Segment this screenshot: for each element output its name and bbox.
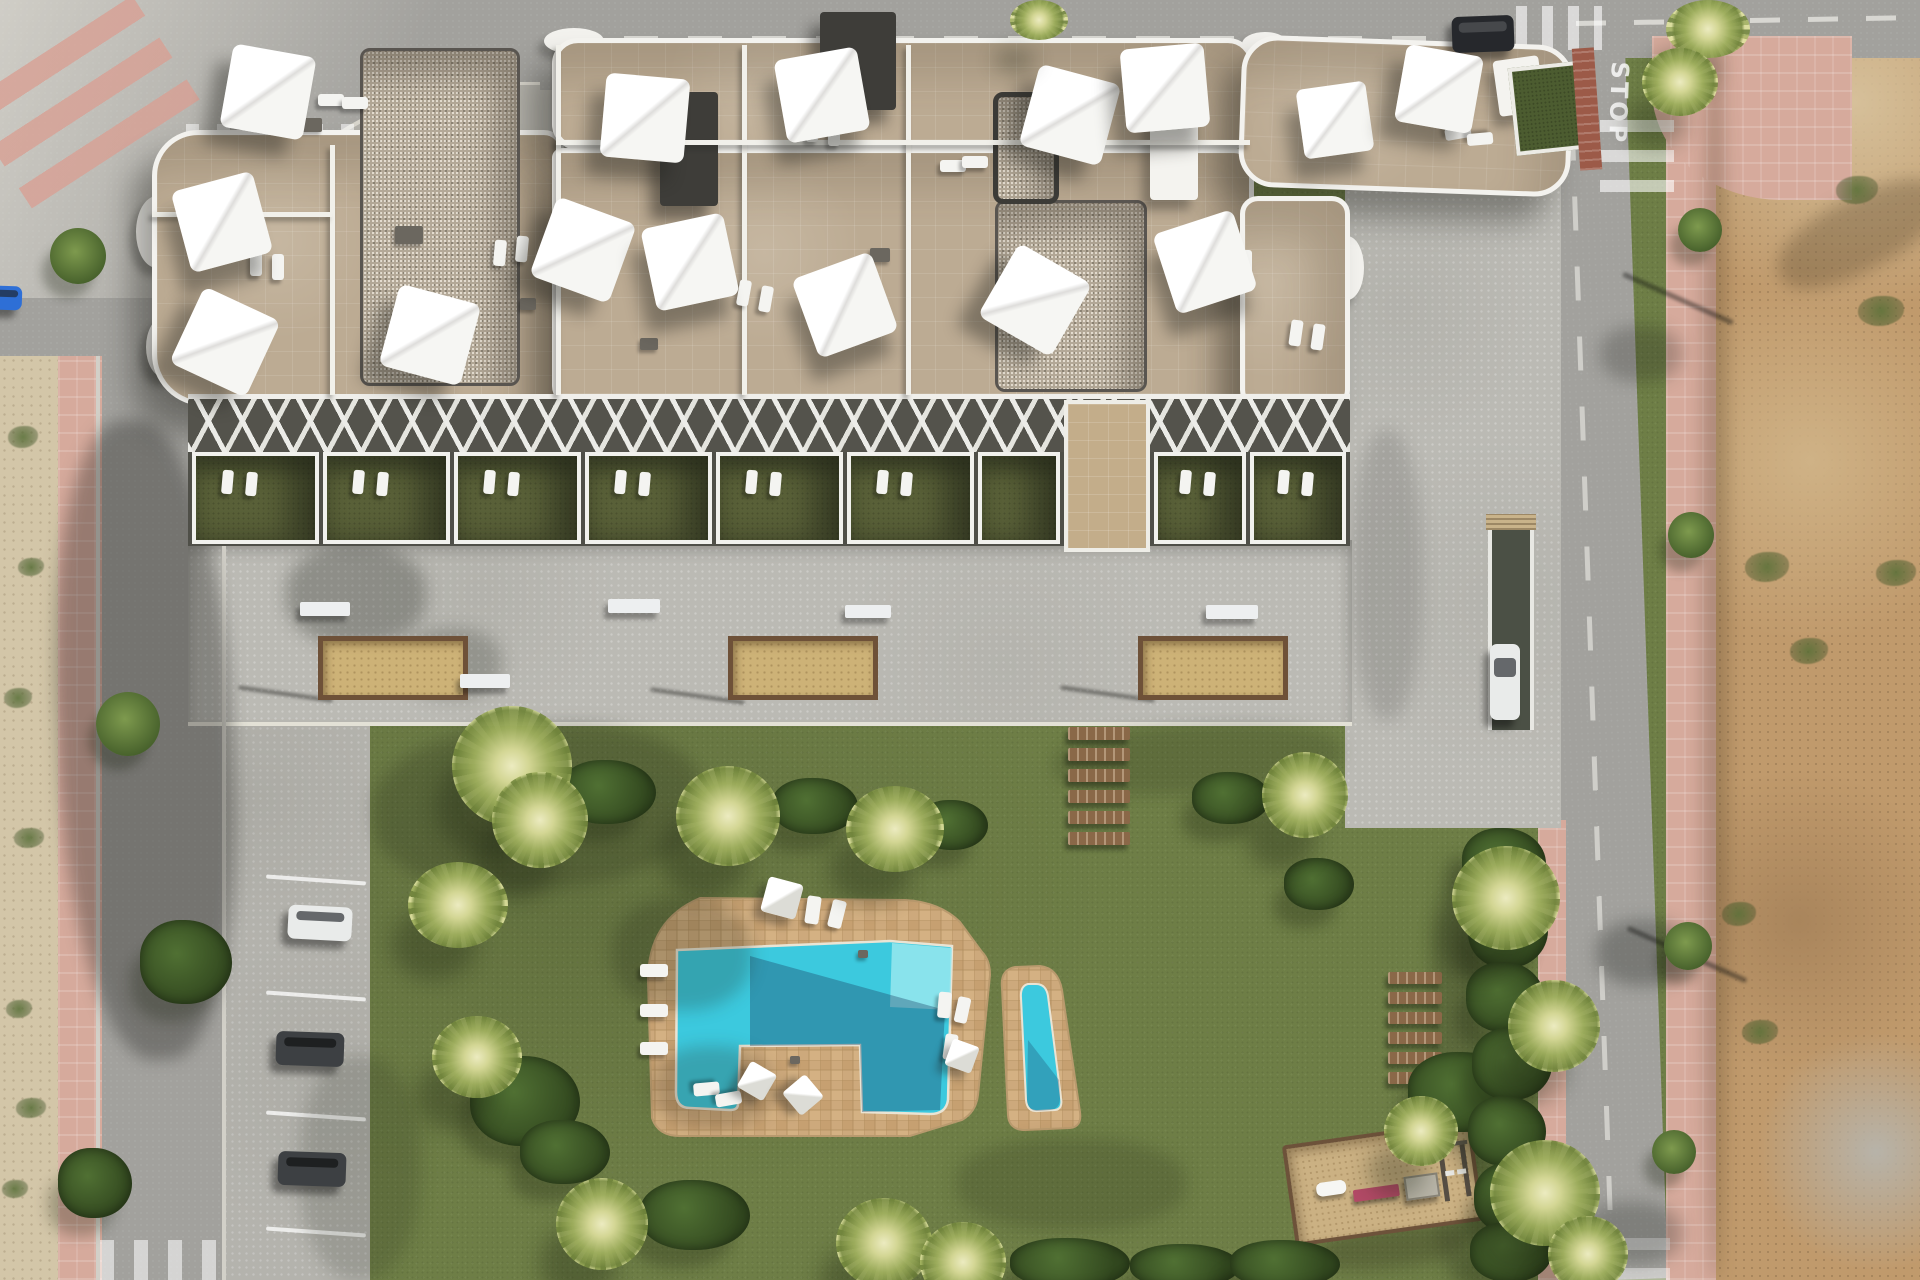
tree bbox=[96, 692, 160, 756]
lawn bbox=[847, 452, 974, 544]
rlounger bbox=[493, 240, 507, 267]
shad bbox=[956, 1138, 1186, 1230]
lawn bbox=[716, 452, 843, 544]
plank bbox=[1068, 748, 1130, 761]
plank bbox=[1388, 1012, 1442, 1024]
palm bbox=[836, 1198, 932, 1280]
stop-marking-top-right: STOP bbox=[1603, 61, 1634, 146]
tlounger bbox=[221, 470, 234, 495]
palm bbox=[432, 1016, 522, 1098]
palm bbox=[1262, 752, 1348, 838]
palm bbox=[1642, 48, 1718, 116]
tree bbox=[50, 228, 106, 284]
car bbox=[277, 1151, 346, 1187]
building-roof-east bbox=[1240, 196, 1350, 408]
planter bbox=[728, 636, 878, 700]
rlounger bbox=[962, 156, 988, 168]
crosswalk-bottom-left bbox=[100, 1240, 226, 1280]
plank bbox=[1068, 727, 1130, 740]
palm bbox=[1452, 846, 1560, 950]
tree bbox=[1652, 1130, 1696, 1174]
tlounger bbox=[1277, 470, 1290, 495]
wwal bbox=[330, 145, 335, 395]
palm bbox=[1508, 980, 1600, 1072]
lounger bbox=[640, 964, 668, 977]
shad bbox=[1600, 326, 1682, 382]
tbl bbox=[790, 1056, 800, 1064]
tlounger bbox=[1203, 472, 1216, 497]
playground-bench bbox=[1353, 1184, 1400, 1202]
palm bbox=[846, 786, 944, 872]
tlounger bbox=[352, 470, 365, 495]
plank bbox=[1068, 769, 1130, 782]
plank bbox=[1388, 972, 1442, 984]
tree bbox=[1668, 512, 1714, 558]
tree bbox=[1664, 922, 1712, 970]
tbl bbox=[640, 338, 658, 350]
tlounger bbox=[1301, 472, 1314, 497]
lawn bbox=[1250, 452, 1346, 544]
palm bbox=[556, 1178, 648, 1270]
lawn bbox=[978, 452, 1060, 544]
tlounger bbox=[245, 472, 258, 497]
sail bbox=[1119, 42, 1210, 133]
garage-ramp-steps bbox=[1486, 514, 1536, 530]
car bbox=[287, 904, 353, 941]
palm bbox=[408, 862, 508, 948]
sail bbox=[640, 212, 740, 312]
plank bbox=[1388, 1032, 1442, 1044]
sail bbox=[1295, 80, 1374, 159]
bush bbox=[1284, 858, 1354, 910]
bush bbox=[58, 1148, 132, 1218]
sand-verge bbox=[0, 356, 58, 1280]
palm bbox=[1010, 0, 1068, 40]
bush bbox=[140, 920, 232, 1004]
lounger bbox=[640, 1042, 668, 1055]
bush bbox=[1010, 1238, 1130, 1280]
tbl bbox=[395, 226, 423, 244]
planter bbox=[318, 636, 468, 700]
sail bbox=[1394, 44, 1484, 134]
tlounger bbox=[507, 472, 520, 497]
car bbox=[0, 285, 22, 310]
tlounger bbox=[614, 470, 627, 495]
bench bbox=[845, 605, 891, 618]
tlounger bbox=[376, 472, 389, 497]
tlounger bbox=[769, 472, 782, 497]
pergola-zigzag-canopy bbox=[188, 394, 1350, 456]
lawn bbox=[454, 452, 581, 544]
palm bbox=[492, 772, 588, 868]
shad bbox=[1352, 430, 1422, 720]
bench bbox=[460, 674, 510, 688]
shad bbox=[1702, 0, 1728, 1280]
sail bbox=[219, 43, 316, 140]
lawn bbox=[323, 452, 450, 544]
shad bbox=[286, 545, 426, 645]
rlounger bbox=[272, 254, 284, 280]
car bbox=[275, 1031, 344, 1067]
plank bbox=[1068, 790, 1130, 803]
bench bbox=[300, 602, 350, 616]
wwal bbox=[906, 45, 911, 395]
sail bbox=[599, 72, 690, 163]
tlounger bbox=[900, 472, 913, 497]
aerial-render-scene: STOP STOP bbox=[0, 0, 1920, 1280]
tbl bbox=[858, 950, 868, 958]
lawn bbox=[192, 452, 319, 544]
shad bbox=[612, 898, 752, 1010]
palm bbox=[676, 766, 780, 866]
wwal bbox=[742, 45, 747, 395]
plank bbox=[1068, 832, 1130, 845]
swing-seat bbox=[1445, 1170, 1455, 1176]
plank bbox=[1068, 811, 1130, 824]
lawn bbox=[585, 452, 712, 544]
rlounger bbox=[1467, 132, 1494, 146]
sail bbox=[773, 46, 870, 143]
tree bbox=[1678, 208, 1722, 252]
tlounger bbox=[638, 472, 651, 497]
walk bbox=[1064, 400, 1150, 552]
car bbox=[1451, 15, 1514, 53]
bush bbox=[520, 1120, 610, 1184]
bush bbox=[1130, 1244, 1240, 1280]
lounger bbox=[640, 1004, 668, 1017]
bench bbox=[1206, 605, 1258, 619]
palm bbox=[1384, 1096, 1458, 1166]
tbl bbox=[520, 298, 536, 310]
planter bbox=[1138, 636, 1288, 700]
bench bbox=[608, 599, 660, 613]
car bbox=[1490, 644, 1520, 720]
tlounger bbox=[483, 470, 496, 495]
seesaw-toy bbox=[1315, 1179, 1347, 1197]
lawn bbox=[1154, 452, 1246, 544]
bush bbox=[640, 1180, 750, 1250]
plank bbox=[1388, 992, 1442, 1004]
slide bbox=[1403, 1172, 1440, 1200]
rlounger bbox=[342, 97, 368, 109]
lounger bbox=[937, 991, 952, 1018]
tlounger bbox=[1179, 470, 1192, 495]
rlounger bbox=[515, 236, 529, 263]
tlounger bbox=[876, 470, 889, 495]
rlounger bbox=[318, 94, 344, 106]
palm bbox=[920, 1222, 1006, 1280]
tlounger bbox=[745, 470, 758, 495]
bush bbox=[1192, 772, 1270, 824]
